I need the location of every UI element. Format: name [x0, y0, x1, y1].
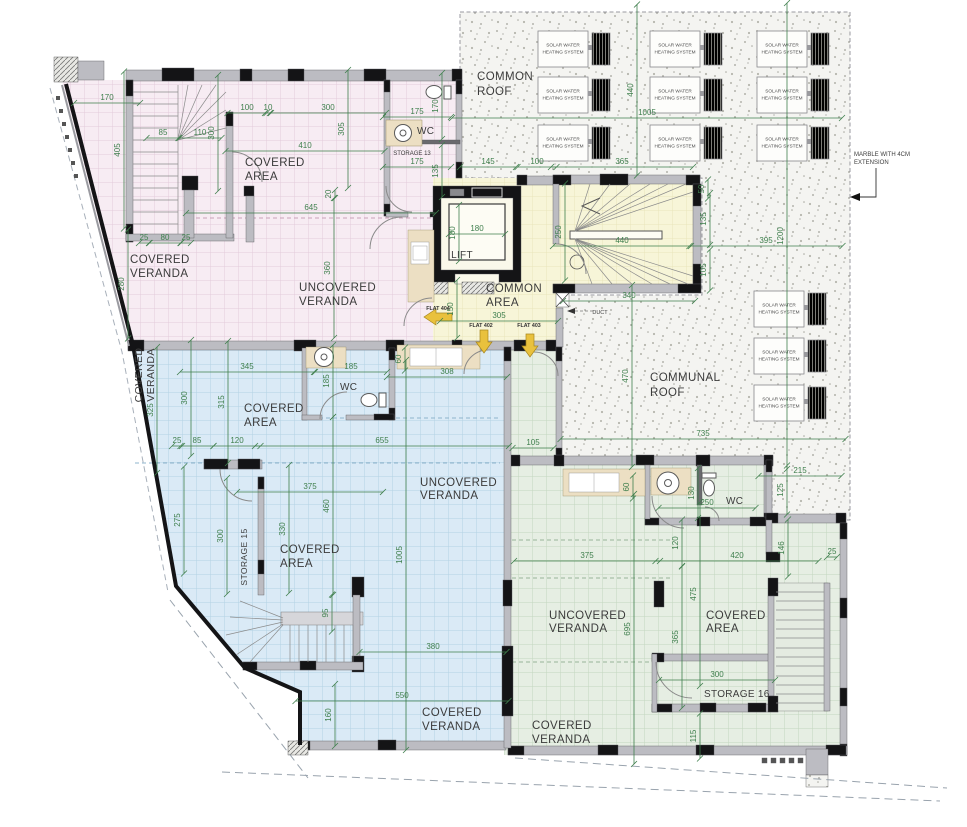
dimension-label: 25 — [140, 233, 149, 242]
dimension-label: 20 — [324, 189, 333, 198]
solar-panel-label: HEATING SYSTEM — [542, 144, 583, 149]
pink-covered-area-label: AREA — [245, 171, 278, 183]
solar-collector-icon — [811, 33, 829, 65]
solar-panel: SOLAR WATERHEATING SYSTEM — [757, 125, 829, 161]
solar-panel-label: SOLAR WATER — [762, 397, 796, 402]
solar-panel-label: HEATING SYSTEM — [758, 357, 799, 362]
roof-plan-drawing: SOLAR WATERHEATING SYSTEMSOLAR WATERHEAT… — [0, 0, 967, 827]
dimension-label: 10 — [264, 103, 273, 112]
dimension-label: 105 — [526, 438, 540, 447]
solar-panel-label: SOLAR WATER — [658, 137, 692, 142]
pink-covered-area-label: COVERED — [245, 157, 305, 169]
dimension-label: 170 — [431, 99, 440, 113]
solar-collector-icon — [808, 293, 826, 325]
flat-404-label: FLAT 404 — [426, 306, 450, 312]
solar-panel: SOLAR WATERHEATING SYSTEM — [754, 291, 826, 327]
solar-panel-label: HEATING SYSTEM — [758, 310, 799, 315]
dimension-label: 160 — [324, 708, 333, 722]
dimension-label: 695 — [623, 622, 632, 636]
dimension-label: 25 — [182, 233, 191, 242]
dimension-label: 475 — [689, 587, 698, 601]
dimension-label: 300 — [216, 529, 225, 543]
dimension-label: 100 — [240, 103, 254, 112]
dimension-label: 340 — [622, 291, 636, 300]
solar-collector-icon — [704, 79, 722, 111]
blue-covered-area-2-label: AREA — [280, 558, 313, 570]
marble-note: EXTENSION — [854, 160, 889, 166]
dimension-label: 130 — [687, 486, 696, 500]
solar-panel-label: HEATING SYSTEM — [654, 50, 695, 55]
solar-collector-icon — [704, 33, 722, 65]
common-area-label: COMMON — [486, 283, 542, 295]
dimension-label: 325 — [146, 403, 155, 417]
solar-panel: SOLAR WATERHEATING SYSTEM — [757, 77, 829, 113]
common-area-label: AREA — [486, 297, 519, 309]
dimension-label: 470 — [621, 369, 630, 383]
dimension-label: 110 — [194, 128, 207, 137]
dimension-label: 215 — [793, 466, 807, 475]
green-wc-label: WC — [726, 496, 743, 507]
solar-panel: SOLAR WATERHEATING SYSTEM — [754, 338, 826, 374]
solar-panel-label: SOLAR WATER — [658, 89, 692, 94]
green-covered-veranda-label: VERANDA — [532, 734, 590, 746]
dimension-label: 180 — [448, 226, 457, 240]
dimension-label: 380 — [426, 642, 440, 651]
blue-covered-area-1-label: COVERED — [244, 403, 304, 415]
dimension-label: 405 — [113, 143, 122, 157]
solar-panel: SOLAR WATERHEATING SYSTEM — [538, 31, 610, 67]
solar-panel-label: HEATING SYSTEM — [758, 404, 799, 409]
solar-collector-icon — [811, 127, 829, 159]
solar-panel: SOLAR WATERHEATING SYSTEM — [538, 77, 610, 113]
pink-wc-label: WC — [417, 126, 434, 137]
solar-panel-label: SOLAR WATER — [546, 89, 580, 94]
dimension-label: 735 — [696, 429, 710, 438]
dimension-label: 280 — [117, 277, 126, 291]
green-covered-area-label: AREA — [706, 623, 739, 635]
green-covered-area-label: COVERED — [706, 610, 766, 622]
green-uncovered-veranda-label: UNCOVERED — [549, 610, 626, 622]
toilet-icon — [361, 394, 377, 407]
storage-13-label: STORAGE 13 — [393, 151, 431, 157]
dimension-label: 375 — [580, 551, 594, 560]
dimension-label: 85 — [159, 128, 168, 137]
dimension-label: 275 — [173, 513, 182, 527]
dimension-label: 185 — [344, 362, 358, 371]
solar-panel-label: SOLAR WATER — [546, 137, 580, 142]
dimension-label: 300 — [207, 126, 216, 140]
solar-panel: SOLAR WATERHEATING SYSTEM — [650, 77, 722, 113]
common-roof-label: COMMON — [477, 71, 533, 83]
dimension-label: 175 — [410, 157, 424, 166]
dimension-label: 365 — [615, 157, 629, 166]
storage-15-label: STORAGE 15 — [239, 528, 249, 585]
dimension-label: 345 — [240, 362, 254, 371]
solar-panel: SOLAR WATERHEATING SYSTEM — [538, 125, 610, 161]
dimension-label: 655 — [375, 436, 389, 445]
storage-16-label: STORAGE 16 — [704, 689, 770, 700]
dimension-label: 180 — [470, 224, 484, 233]
blue-wc-label: WC — [340, 382, 357, 393]
dimension-label: 175 — [410, 107, 424, 116]
solar-collector-icon — [808, 340, 826, 372]
dimension-label: 550 — [395, 691, 409, 700]
green-covered-veranda-label: COVERED — [532, 720, 592, 732]
dimension-label: 365 — [671, 630, 680, 644]
pink-covered-veranda-label: VERANDA — [130, 268, 188, 280]
solar-panel: SOLAR WATERHEATING SYSTEM — [650, 125, 722, 161]
dimension-label: 1005 — [395, 546, 404, 564]
dimension-label: 305 — [337, 122, 346, 136]
dimension-label: 440 — [615, 236, 629, 245]
blue-covered-veranda-side-label: COVERED — [133, 348, 145, 403]
dimension-label: 120 — [671, 536, 680, 550]
marble-note-leader — [850, 168, 876, 201]
solar-panel-label: SOLAR WATER — [762, 303, 796, 308]
dimension-label: 170 — [100, 93, 114, 102]
dimension-label: 60 — [622, 482, 631, 491]
dimension-label: 146 — [777, 541, 786, 555]
dimension-label: 410 — [298, 141, 312, 150]
dimension-label: 395 — [759, 236, 773, 245]
solar-panel: SOLAR WATERHEATING SYSTEM — [757, 31, 829, 67]
solar-collector-icon — [808, 387, 826, 419]
blue-uncovered-veranda-label: VERANDA — [420, 490, 478, 502]
dimension-label: 25 — [173, 436, 182, 445]
blue-covered-veranda-bottom-label: COVERED — [422, 707, 482, 719]
flat-403-label: FLAT 403 — [517, 323, 541, 329]
dimension-label: 645 — [304, 203, 318, 212]
pink-uncovered-veranda-label: VERANDA — [299, 296, 357, 308]
dimension-label: 360 — [323, 261, 332, 275]
dimension-label: 25 — [828, 547, 837, 556]
blue-uncovered-veranda-label: UNCOVERED — [420, 477, 497, 489]
dimension-label: 135 — [699, 212, 708, 226]
solar-panel-label: SOLAR WATER — [658, 43, 692, 48]
solar-panel-label: HEATING SYSTEM — [761, 144, 802, 149]
dimension-label: 420 — [730, 551, 744, 560]
pink-covered-veranda-label: COVERED — [130, 254, 190, 266]
solar-collector-icon — [704, 127, 722, 159]
dimension-label: 60 — [394, 354, 403, 363]
dimension-label: 80 — [161, 233, 170, 242]
marble-note: MARBLE WITH 4CM — [854, 152, 910, 158]
pink-uncovered-veranda-label: UNCOVERED — [299, 282, 376, 294]
duct-label: DUCT — [592, 310, 608, 316]
dimension-label: 300 — [321, 103, 335, 112]
dimension-label: 105 — [699, 263, 708, 277]
blue-covered-veranda-bottom-label: VERANDA — [422, 721, 480, 733]
solar-collector-icon — [592, 79, 610, 111]
green-uncovered-veranda-label: VERANDA — [549, 623, 607, 635]
communal-roof-label: ROOF — [650, 387, 685, 399]
solar-panel: SOLAR WATERHEATING SYSTEM — [754, 385, 826, 421]
blue-covered-veranda-side-label: VERANDA — [145, 348, 157, 402]
dimension-label: 315 — [217, 395, 226, 409]
dimension-label: 250 — [554, 225, 563, 239]
lift-label: LIFT — [451, 250, 473, 261]
dimension-label: 440 — [626, 83, 635, 97]
solar-panel-label: HEATING SYSTEM — [761, 50, 802, 55]
dimension-label: 135 — [431, 164, 440, 178]
solar-panel-label: HEATING SYSTEM — [542, 96, 583, 101]
blue-covered-area-1-label: AREA — [244, 417, 277, 429]
toilet-icon — [704, 480, 715, 496]
solar-collector-icon — [811, 79, 829, 111]
solar-panel: SOLAR WATERHEATING SYSTEM — [650, 31, 722, 67]
common-roof-label: ROOF — [477, 86, 512, 98]
dimension-label: 1200 — [776, 227, 785, 245]
dimension-label: 115 — [689, 729, 698, 742]
dimension-label: 185 — [322, 374, 331, 388]
dimension-label: 375 — [303, 482, 317, 491]
dimension-label: 305 — [492, 311, 506, 320]
dimension-label: 120 — [230, 436, 244, 445]
dimension-label: 145 — [481, 157, 495, 166]
solar-panel-label: SOLAR WATER — [765, 89, 799, 94]
dimension-label: 85 — [193, 436, 202, 445]
dimension-label: 50 — [697, 184, 706, 193]
blue-covered-area-2-label: COVERED — [280, 544, 340, 556]
solar-collector-icon — [592, 33, 610, 65]
toilet-icon — [426, 86, 442, 99]
solar-panel-label: HEATING SYSTEM — [654, 96, 695, 101]
dimension-label: 300 — [710, 670, 724, 679]
solar-panel-label: HEATING SYSTEM — [542, 50, 583, 55]
dimension-label: 95 — [321, 608, 330, 617]
dimension-label: 1005 — [638, 108, 656, 117]
solar-panel-label: SOLAR WATER — [762, 350, 796, 355]
dimension-label: 125 — [776, 483, 785, 497]
flat-402-label: FLAT 402 — [469, 323, 493, 329]
solar-panel-label: HEATING SYSTEM — [654, 144, 695, 149]
solar-panel-label: SOLAR WATER — [765, 137, 799, 142]
dimension-label: 100 — [530, 157, 544, 166]
communal-roof-label: COMMUNAL — [650, 372, 720, 384]
dimension-label: 308 — [440, 367, 454, 376]
solar-panel-label: SOLAR WATER — [765, 43, 799, 48]
dimension-label: 460 — [322, 499, 331, 513]
solar-panel-label: HEATING SYSTEM — [761, 96, 802, 101]
dimension-label: 330 — [278, 522, 287, 536]
solar-collector-icon — [592, 127, 610, 159]
floor-plan-canvas: SOLAR WATERHEATING SYSTEMSOLAR WATERHEAT… — [0, 0, 967, 827]
dimension-label: 300 — [180, 391, 189, 405]
solar-panel-label: SOLAR WATER — [546, 43, 580, 48]
